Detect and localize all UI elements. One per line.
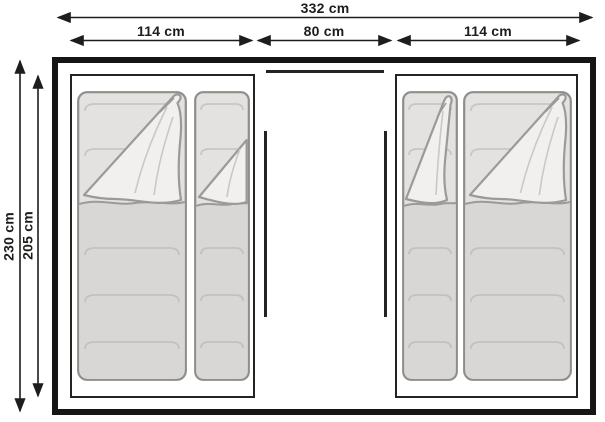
sleeping-bag-narrow-right (402, 91, 458, 381)
tent-floorplan: 332 cm 114 cm 80 cm 114 cm 230 cm 205 cm (0, 0, 605, 422)
dimension-label-center-width: 80 cm (264, 24, 384, 39)
dimension-label-left-cabin-width: 114 cm (101, 24, 221, 39)
corridor-front-wall (266, 70, 384, 73)
sleeping-bag-narrow-left (194, 91, 250, 381)
dimension-label-total-width: 332 cm (245, 1, 405, 16)
corridor-left-wall (264, 131, 267, 317)
sleeping-bag-wide-right (463, 91, 572, 381)
sleeping-bag-wide-left (77, 91, 187, 381)
dimension-label-inner-depth: 205 cm (21, 196, 36, 276)
dimension-label-right-cabin-width: 114 cm (428, 24, 548, 39)
corridor-right-wall (384, 131, 387, 317)
dimension-label-outer-depth: 230 cm (2, 197, 17, 277)
